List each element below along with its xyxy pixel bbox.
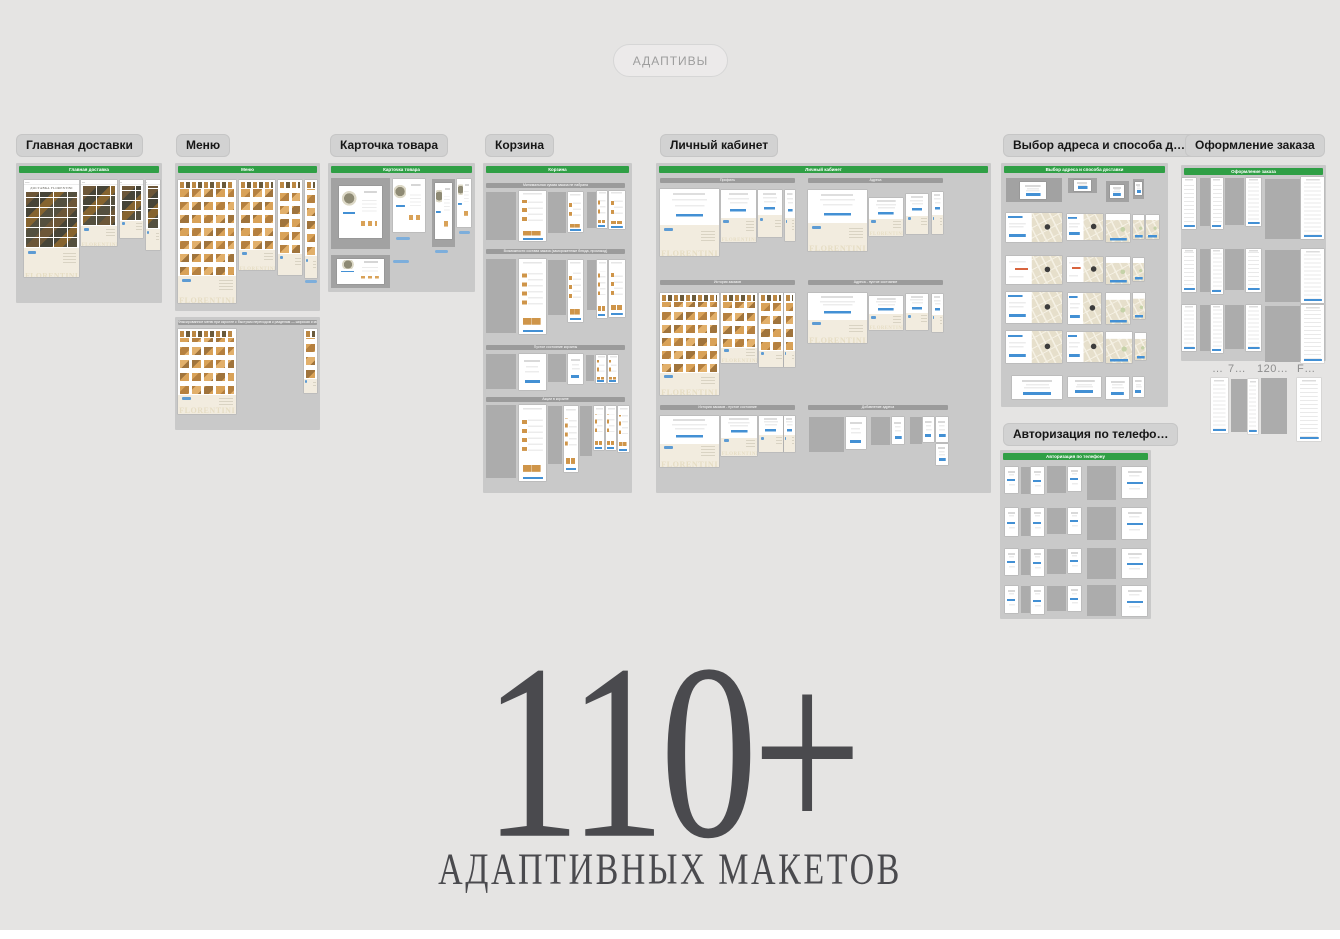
account-page-mockup[interactable]: FLORENTINI: [721, 190, 756, 242]
account-page-mockup[interactable]: FLORENTINI: [660, 416, 719, 467]
menu-page-mockup[interactable]: FLORENTINI: [239, 180, 275, 270]
gray-placeholder[interactable]: [1265, 179, 1300, 239]
subsection-title-bar: История заказов - пустое состояние: [660, 405, 795, 410]
cart-page-mockup[interactable]: [519, 191, 546, 241]
menu-card-grid: [723, 302, 755, 347]
gray-placeholder[interactable]: [580, 406, 592, 456]
checkout-form-mockup[interactable]: [1301, 249, 1324, 303]
auth-screen-mockup[interactable]: [1068, 467, 1081, 491]
frame-title-bar: Главная доставка: [19, 166, 159, 173]
auth-screen-mockup[interactable]: [1122, 508, 1147, 539]
auth-screen-mockup[interactable]: [1005, 467, 1018, 493]
section-chip-product-card[interactable]: Карточка товара: [330, 134, 448, 157]
frame-name-label[interactable]: …: [1212, 363, 1224, 375]
subsection-title-bar: Добавление адреса: [808, 405, 948, 410]
dialog-card-mockup[interactable]: [1135, 182, 1142, 195]
brand-logo: FLORENTINI: [661, 250, 718, 256]
gray-placeholder[interactable]: [1021, 508, 1030, 536]
brand-logo: FLORENTINI: [722, 452, 757, 456]
page-footer: FLORENTINI: [660, 444, 719, 467]
page-footer: FLORENTINI: [869, 314, 903, 330]
map-card-mockup[interactable]: [1133, 258, 1144, 281]
auth-screen-mockup[interactable]: [1005, 586, 1018, 613]
dialog-card-mockup[interactable]: [923, 417, 934, 442]
frame-name-label[interactable]: 120…: [1257, 363, 1288, 375]
page-footer: [759, 351, 783, 367]
food-photo-grid: [26, 192, 77, 247]
page-footer: FLORENTINI: [81, 226, 117, 246]
checkout-form-mockup[interactable]: [1182, 178, 1196, 229]
menu-card-grid: [180, 189, 234, 275]
form-content: [906, 194, 928, 216]
account-page-mockup[interactable]: [785, 190, 795, 241]
dialog-card-mockup[interactable]: [936, 444, 948, 465]
auth-screen-mockup[interactable]: [1005, 508, 1018, 536]
dialog-card-mockup[interactable]: [936, 417, 948, 442]
food-photo-grid: [148, 186, 158, 228]
subsection-title-bar: Минимальная сумма заказа не набрана: [486, 183, 625, 188]
gray-placeholder[interactable]: [1200, 305, 1210, 351]
menu-card-grid: [662, 302, 717, 372]
auth-screen-mockup[interactable]: [1068, 508, 1081, 534]
page-footer: [759, 435, 783, 452]
cart-page-mockup[interactable]: [597, 260, 607, 318]
checkout-form-mockup[interactable]: [1182, 249, 1196, 292]
form-content: [869, 198, 903, 219]
dialog-card-mockup[interactable]: [1133, 377, 1144, 397]
product-card-mockup[interactable]: [457, 179, 471, 227]
product-card-mockup[interactable]: [435, 183, 452, 239]
subsection-title-bar: Возможности состава заказа (замороженные…: [486, 249, 625, 254]
page-footer: [120, 221, 143, 238]
page-footer: [784, 435, 795, 452]
menu-page-mockup[interactable]: [305, 180, 317, 278]
form-content: [906, 294, 928, 313]
map-card-mockup[interactable]: [1135, 333, 1146, 360]
cart-page-mockup[interactable]: [594, 406, 604, 450]
delivery-page-mockup[interactable]: [120, 180, 143, 238]
frame-title-bar: Корзина: [486, 166, 629, 173]
cart-page-mockup[interactable]: [606, 406, 616, 450]
subsection-title-bar: Пустое состояние корзины: [486, 345, 625, 350]
menu-card-grid: [180, 338, 234, 394]
delivery-page-mockup[interactable]: [146, 180, 160, 250]
gray-placeholder[interactable]: [1225, 305, 1244, 349]
form-content: [660, 189, 719, 225]
account-page-mockup[interactable]: [784, 416, 795, 452]
page-footer: [304, 379, 317, 393]
dialog-card-mockup[interactable]: [892, 417, 904, 444]
menu-page-mockup[interactable]: [304, 329, 317, 393]
account-page-mockup[interactable]: FLORENTINI: [808, 190, 867, 251]
form-content: [721, 416, 757, 438]
blue-frame-tag: [396, 237, 410, 240]
page-header-bar: [120, 180, 143, 185]
menu-card-grid: [280, 189, 300, 253]
section-chip-checkout[interactable]: Оформление заказа: [1185, 134, 1325, 157]
brand-logo: FLORENTINI: [25, 272, 78, 277]
cart-page-mockup[interactable]: [618, 406, 629, 452]
gray-placeholder[interactable]: [586, 355, 594, 381]
auth-screen-mockup[interactable]: [1122, 586, 1147, 616]
gray-placeholder[interactable]: [486, 259, 516, 333]
account-page-mockup[interactable]: [906, 194, 928, 234]
checkout-form-mockup[interactable]: [1182, 305, 1196, 351]
product-card-mockup[interactable]: [339, 186, 382, 238]
gray-placeholder[interactable]: [1047, 508, 1066, 534]
checkout-form-mockup[interactable]: [1301, 177, 1324, 239]
brand-logo: FLORENTINI: [809, 337, 866, 343]
checkout-form-mockup[interactable]: [1211, 249, 1223, 294]
map-modal-mockup[interactable]: [1068, 293, 1101, 324]
page-footer: FLORENTINI: [721, 218, 756, 242]
checkout-form-mockup[interactable]: [1248, 379, 1258, 434]
account-page-mockup[interactable]: [759, 416, 783, 452]
gray-placeholder[interactable]: [486, 354, 516, 389]
section-chip-address-choice[interactable]: Выбор адреса и способа д…: [1003, 134, 1195, 157]
gray-placeholder[interactable]: [587, 192, 596, 228]
gray-placeholder[interactable]: [548, 354, 566, 382]
form-content: [758, 190, 782, 215]
subsection-title-bar: Адреса - пустое состояние: [808, 280, 943, 285]
category-strip: [307, 182, 315, 188]
brand-logo: FLORENTINI: [809, 245, 866, 251]
account-page-mockup[interactable]: FLORENTINI: [869, 198, 903, 236]
gray-placeholder[interactable]: [1231, 379, 1247, 432]
subsection-title-bar: Профиль: [660, 178, 795, 183]
form-content: [785, 190, 795, 218]
subsection-title-bar: Акции в корзине: [486, 397, 625, 402]
menu-card-grid: [241, 189, 273, 249]
page-footer: [305, 256, 317, 278]
dialog-card-mockup[interactable]: [1020, 182, 1046, 199]
checkout-form-mockup[interactable]: [1211, 178, 1223, 229]
hero-count: 110+: [483, 627, 856, 877]
gray-placeholder[interactable]: [1261, 378, 1287, 434]
frame-title-bar: Оформление заказа: [1184, 168, 1323, 175]
form-content: [759, 416, 783, 435]
cart-page-mockup[interactable]: [609, 260, 625, 317]
menu-page-mockup[interactable]: [759, 293, 783, 367]
section-chip-cart[interactable]: Корзина: [485, 134, 554, 157]
cart-page-mockup[interactable]: [596, 355, 606, 383]
checkout-form-mockup[interactable]: [1301, 305, 1324, 363]
dialog-card-mockup[interactable]: [519, 354, 546, 390]
brand-logo: FLORENTINI: [870, 233, 903, 236]
menu-page-mockup[interactable]: FLORENTINI: [721, 293, 757, 363]
dialog-card-mockup[interactable]: [1106, 377, 1129, 399]
cart-page-mockup[interactable]: [519, 405, 546, 481]
modal-backdrop-panel[interactable]: [1133, 179, 1144, 199]
brand-logo: FLORENTINI: [179, 297, 235, 303]
brand-logo: FLORENTINI: [661, 389, 718, 395]
gray-placeholder[interactable]: [809, 417, 844, 452]
map-card-mockup[interactable]: [1133, 293, 1145, 319]
account-page-mockup[interactable]: [758, 190, 782, 237]
cart-page-mockup[interactable]: [519, 259, 546, 334]
modal-backdrop-panel[interactable]: [1006, 178, 1062, 202]
gray-placeholder[interactable]: [1265, 306, 1300, 362]
gray-placeholder[interactable]: [548, 406, 562, 464]
form-content: [808, 293, 867, 320]
brand-logo: FLORENTINI: [661, 461, 718, 467]
frame-title-bar: Выбор адреса и способа доставки: [1004, 166, 1165, 173]
gray-placeholder[interactable]: [1200, 249, 1210, 292]
map-modal-mockup[interactable]: [1067, 214, 1103, 240]
account-page-mockup[interactable]: FLORENTINI: [869, 296, 903, 330]
gray-placeholder[interactable]: [1047, 549, 1066, 574]
auth-screen-mockup[interactable]: [1031, 549, 1044, 576]
gray-placeholder[interactable]: [548, 260, 566, 315]
menu-page-mockup[interactable]: [784, 293, 795, 367]
modal-backdrop-panel[interactable]: [331, 255, 390, 288]
page-title: ДОСТАВКА FLORENTINI: [24, 185, 79, 191]
gray-placeholder[interactable]: [1087, 507, 1116, 540]
menu-page-mockup[interactable]: FLORENTINI: [660, 293, 719, 395]
checkout-form-mockup[interactable]: [1211, 378, 1228, 433]
modal-backdrop-panel[interactable]: [1068, 178, 1097, 193]
page-footer: FLORENTINI: [660, 225, 719, 256]
page-footer: FLORENTINI: [721, 348, 757, 363]
page-footer: FLORENTINI: [239, 250, 275, 270]
page-header-bar: [81, 180, 117, 185]
auth-screen-mockup[interactable]: [1122, 467, 1147, 498]
gray-placeholder[interactable]: [1225, 178, 1244, 225]
page-footer: FLORENTINI: [660, 373, 719, 395]
page-footer: FLORENTINI: [869, 219, 903, 236]
page-footer: FLORENTINI: [721, 438, 757, 456]
map-modal-mockup[interactable]: [1006, 331, 1062, 363]
map-card-mockup[interactable]: [1106, 332, 1132, 363]
category-strip: [761, 295, 781, 301]
blue-frame-tag: [435, 250, 448, 253]
brand-logo: FLORENTINI: [722, 359, 757, 363]
dialog-card-mockup[interactable]: [1012, 376, 1062, 399]
account-page-mockup[interactable]: [932, 192, 943, 234]
gray-placeholder[interactable]: [587, 260, 596, 310]
gray-placeholder[interactable]: [548, 192, 566, 233]
account-page-mockup[interactable]: [932, 294, 943, 332]
page-footer: [906, 216, 928, 234]
page-footer: [278, 254, 302, 275]
gray-placeholder[interactable]: [486, 405, 516, 478]
page-footer: [906, 313, 928, 330]
page-footer: [932, 315, 943, 332]
frame-name-label[interactable]: 7…: [1228, 363, 1246, 375]
page-footer: FLORENTINI: [808, 223, 867, 251]
auth-screen-mockup[interactable]: [1005, 549, 1018, 575]
cart-page-mockup[interactable]: [568, 260, 583, 322]
auth-screen-mockup[interactable]: [1031, 586, 1044, 614]
modal-backdrop-panel[interactable]: [1106, 181, 1129, 202]
product-card-mockup[interactable]: [393, 179, 425, 232]
checkout-form-mockup[interactable]: [1297, 378, 1321, 441]
hero-caption: АДАПТИВНЫХ МАКЕТОВ: [438, 843, 902, 895]
section-chip-menu[interactable]: Меню: [176, 134, 230, 157]
dialog-card-mockup[interactable]: [568, 354, 583, 384]
account-page-mockup[interactable]: FLORENTINI: [721, 416, 757, 456]
checkout-form-mockup[interactable]: [1211, 305, 1223, 353]
auth-screen-mockup[interactable]: [1031, 508, 1044, 536]
form-content: [932, 294, 943, 315]
menu-card-grid: [786, 302, 793, 350]
food-photo-grid: [122, 186, 141, 220]
modal-backdrop-panel[interactable]: [331, 178, 390, 249]
frame-title-bar: Фиксированное меню при скролле с быстрым…: [178, 320, 317, 325]
cart-page-mockup[interactable]: [608, 355, 618, 383]
page-footer: [758, 215, 782, 237]
page-footer: [932, 215, 943, 234]
gray-placeholder[interactable]: [1087, 585, 1116, 616]
gray-placeholder[interactable]: [1087, 466, 1116, 500]
account-page-mockup[interactable]: FLORENTINI: [808, 293, 867, 343]
auth-screen-mockup[interactable]: [1122, 549, 1147, 578]
blue-frame-tag: [459, 231, 470, 234]
gray-placeholder[interactable]: [910, 417, 922, 444]
page-header-bar: [146, 180, 160, 185]
map-modal-mockup[interactable]: [1067, 332, 1103, 362]
brand-logo: FLORENTINI: [240, 267, 275, 270]
gray-placeholder[interactable]: [1021, 586, 1030, 613]
map-card-mockup[interactable]: [1106, 257, 1130, 284]
section-chip-phone-auth[interactable]: Авторизация по телефо…: [1003, 423, 1178, 446]
frame-title-bar: Карточка товара: [331, 166, 472, 173]
delivery-page-mockup[interactable]: FLORENTINI: [81, 180, 117, 246]
account-page-mockup[interactable]: [906, 294, 928, 330]
checkout-form-mockup[interactable]: [1246, 305, 1261, 351]
adaptives-button[interactable]: АДАПТИВЫ: [613, 44, 728, 77]
category-strip: [723, 295, 755, 301]
page-footer: [784, 351, 795, 367]
dialog-card-mockup[interactable]: [1110, 185, 1124, 198]
page-footer: FLORENTINI: [178, 395, 236, 414]
account-page-mockup[interactable]: FLORENTINI: [660, 189, 719, 256]
category-strip: [180, 331, 234, 337]
gray-placeholder[interactable]: [1200, 178, 1210, 226]
brand-logo: FLORENTINI: [870, 327, 903, 330]
cart-page-mockup[interactable]: [609, 191, 625, 229]
checkout-form-mockup[interactable]: [1246, 249, 1261, 292]
category-strip: [662, 295, 717, 301]
menu-card-grid: [307, 189, 315, 255]
subsection-title-bar: История заказов: [660, 280, 795, 285]
frame-title-bar: Авторизация по телефону: [1003, 453, 1148, 460]
map-card-mockup[interactable]: [1133, 215, 1144, 239]
form-content: [808, 190, 867, 223]
map-card-mockup[interactable]: [1106, 293, 1130, 324]
menu-page-mockup[interactable]: FLORENTINI: [178, 180, 236, 303]
form-content: [660, 416, 719, 444]
menu-card-grid: [761, 302, 781, 350]
brand-logo: FLORENTINI: [82, 243, 117, 246]
gray-placeholder[interactable]: [1087, 548, 1116, 579]
brand-logo: FLORENTINI: [722, 239, 756, 242]
auth-screen-mockup[interactable]: [1031, 467, 1044, 494]
food-photo-grid: [83, 186, 115, 225]
page-footer: [785, 218, 795, 241]
brand-logo: FLORENTINI: [179, 407, 235, 414]
gray-placeholder[interactable]: [1047, 466, 1066, 493]
map-modal-mockup[interactable]: [1006, 256, 1062, 284]
dialog-card-mockup[interactable]: [1068, 377, 1101, 397]
blue-frame-tag: [393, 260, 409, 263]
section-chip-main-delivery[interactable]: Главная доставки: [16, 134, 143, 157]
frame-title-bar: Меню: [178, 166, 317, 173]
bottom-strip: [0, 930, 1340, 939]
auth-screen-mockup[interactable]: [1068, 586, 1081, 611]
map-modal-mockup[interactable]: [1006, 213, 1062, 242]
product-card-mockup[interactable]: [337, 259, 384, 284]
form-content: [784, 416, 795, 435]
delivery-page-mockup[interactable]: ДОСТАВКА FLORENTINIFLORENTINI: [24, 180, 79, 277]
category-strip: [786, 295, 793, 301]
gray-placeholder[interactable]: [1021, 467, 1030, 494]
page-footer: FLORENTINI: [808, 320, 867, 343]
menu-page-mockup[interactable]: FLORENTINI: [178, 329, 236, 414]
category-strip: [241, 182, 273, 188]
map-card-mockup[interactable]: [1146, 215, 1159, 239]
page-footer: FLORENTINI: [178, 276, 236, 303]
category-strip: [280, 182, 300, 188]
cart-page-mockup[interactable]: [597, 191, 607, 228]
dialog-card-mockup[interactable]: [1074, 180, 1091, 191]
gray-placeholder[interactable]: [871, 417, 890, 445]
frame-title-bar: Личный кабинет: [659, 166, 988, 173]
blue-frame-tag: [305, 280, 317, 283]
gray-placeholder[interactable]: [1225, 249, 1244, 290]
auth-screen-mockup[interactable]: [1068, 549, 1081, 573]
subsection-title-bar: Адреса: [808, 178, 943, 183]
gray-placeholder[interactable]: [486, 192, 516, 240]
map-modal-mockup[interactable]: [1067, 257, 1103, 282]
gray-placeholder[interactable]: [1047, 586, 1066, 611]
gray-placeholder[interactable]: [1021, 549, 1030, 575]
menu-card-grid: [306, 338, 315, 378]
category-strip: [306, 331, 315, 337]
form-content: [869, 296, 903, 314]
page-footer: [146, 229, 160, 250]
modal-backdrop-panel[interactable]: [432, 179, 455, 247]
section-chip-account[interactable]: Личный кабинет: [660, 134, 778, 157]
gray-placeholder[interactable]: [1265, 250, 1300, 302]
form-content: [721, 190, 756, 218]
cart-page-mockup[interactable]: [568, 192, 583, 232]
map-card-mockup[interactable]: [1106, 214, 1130, 242]
checkout-form-mockup[interactable]: [1246, 178, 1261, 226]
form-content: [932, 192, 943, 215]
dialog-card-mockup[interactable]: [846, 417, 866, 449]
page-footer: FLORENTINI: [24, 248, 79, 277]
frame-name-label[interactable]: F…: [1297, 363, 1316, 375]
category-strip: [180, 182, 234, 188]
menu-page-mockup[interactable]: [278, 180, 302, 275]
map-modal-mockup[interactable]: [1006, 292, 1062, 323]
cart-page-mockup[interactable]: [564, 406, 578, 472]
